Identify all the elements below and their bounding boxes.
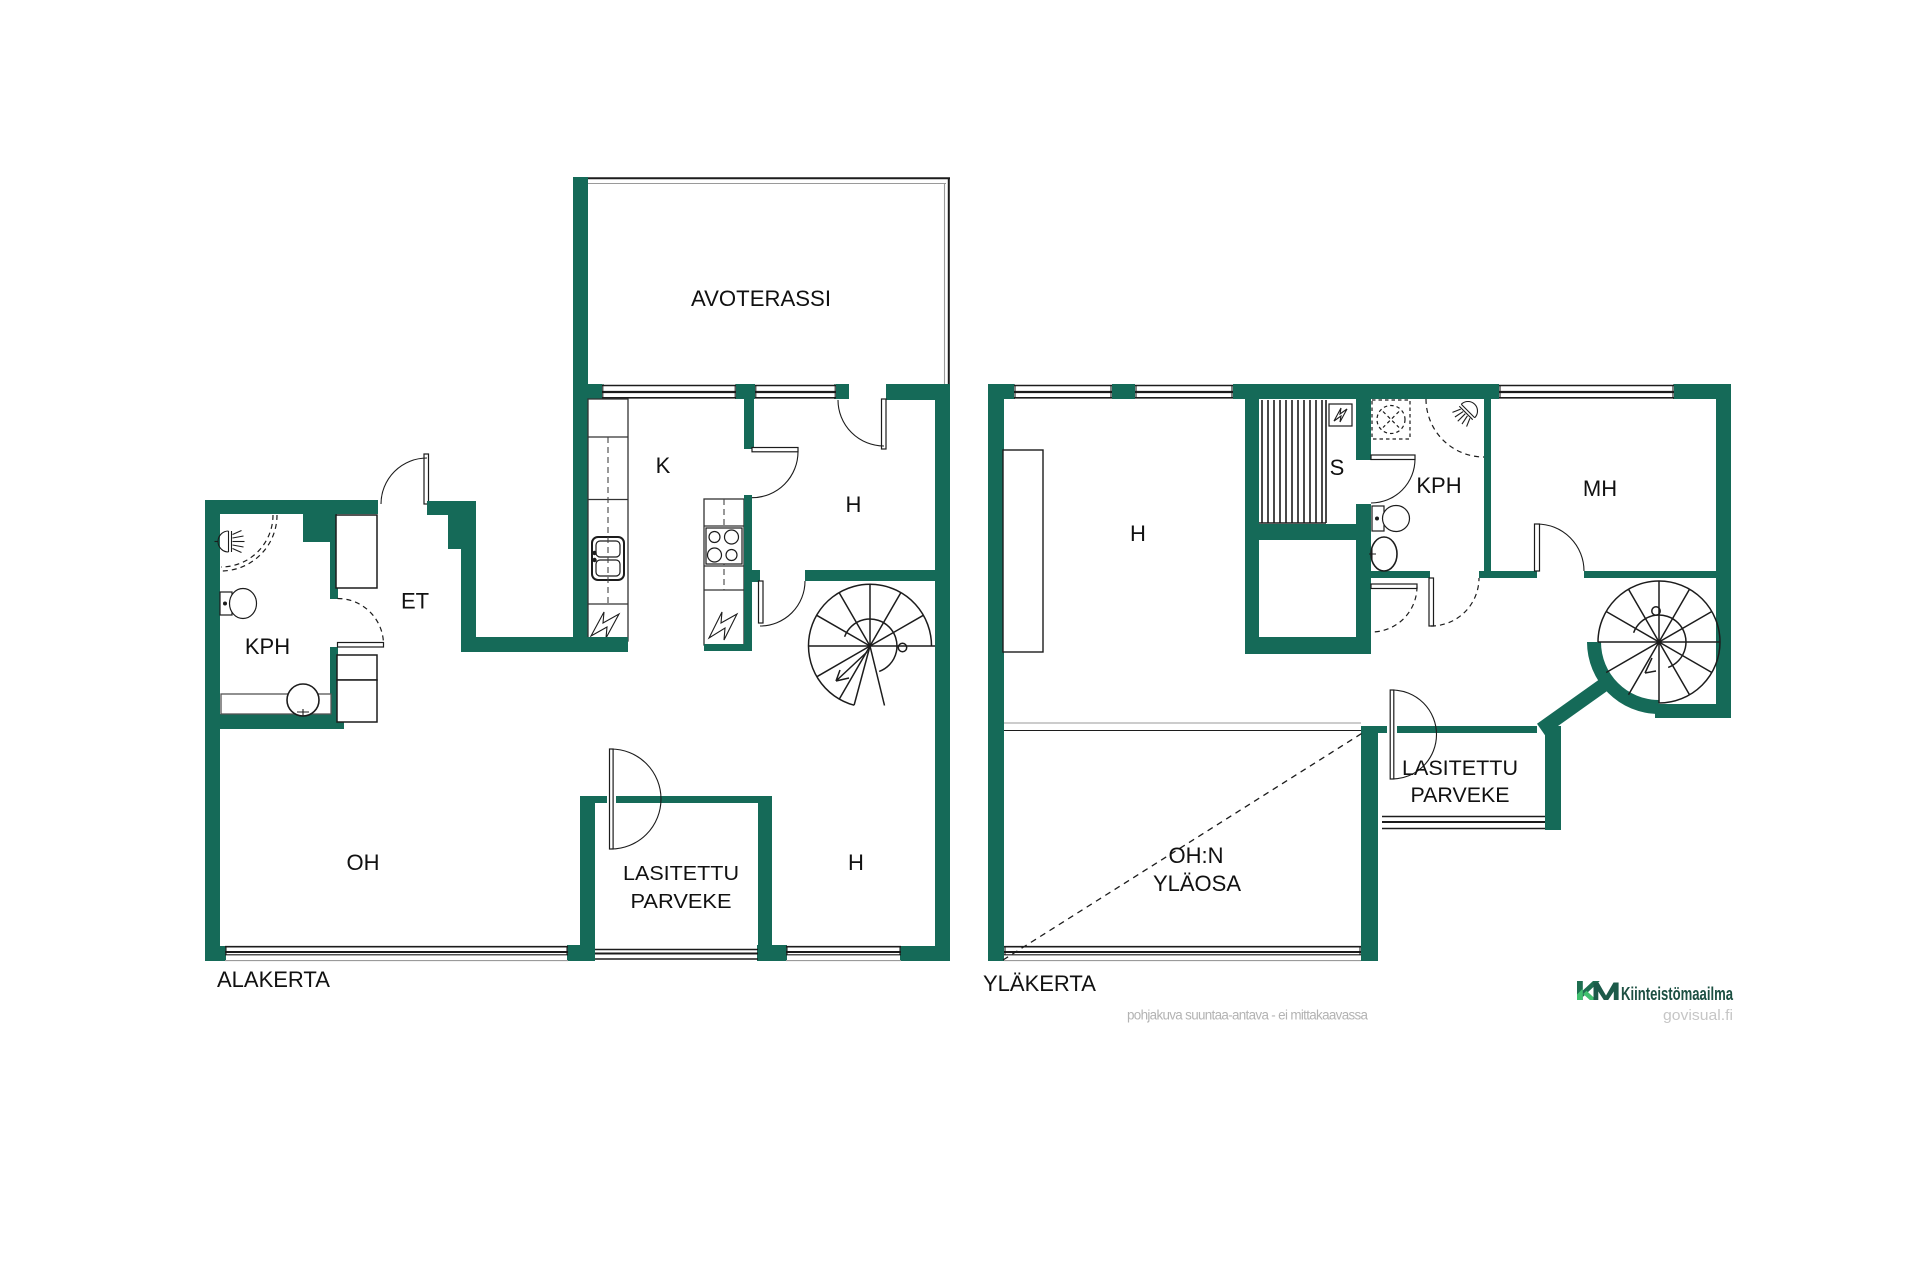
svg-text:govisual.fi: govisual.fi [1663, 1007, 1733, 1024]
svg-text:H: H [848, 850, 864, 875]
svg-text:KPH: KPH [1416, 473, 1461, 498]
svg-text:Kiinteistömaailma: Kiinteistömaailma [1621, 984, 1734, 1004]
svg-text:KPH: KPH [245, 634, 290, 659]
svg-text:ALAKERTA: ALAKERTA [217, 967, 330, 992]
svg-text:YLÄKERTA: YLÄKERTA [983, 971, 1096, 996]
svg-text:MH: MH [1583, 476, 1617, 501]
svg-text:ET: ET [401, 589, 429, 614]
svg-text:OH: OH [347, 850, 380, 875]
svg-text:S: S [1330, 455, 1345, 480]
svg-text:PARVEKE: PARVEKE [1411, 784, 1510, 807]
svg-text:OH:N: OH:N [1169, 843, 1224, 868]
svg-text:H: H [846, 492, 862, 517]
svg-text:PARVEKE: PARVEKE [631, 890, 732, 913]
svg-text:AVOTERASSI: AVOTERASSI [691, 286, 831, 311]
svg-text:LASITETTU: LASITETTU [623, 862, 739, 885]
svg-text:YLÄOSA: YLÄOSA [1153, 871, 1241, 896]
svg-text:K: K [656, 453, 671, 478]
svg-text:pohjakuva suuntaa-antava - ei: pohjakuva suuntaa-antava - ei mittakaava… [1127, 1008, 1369, 1023]
svg-text:LASITETTU: LASITETTU [1402, 757, 1518, 780]
svg-text:H: H [1130, 521, 1146, 546]
